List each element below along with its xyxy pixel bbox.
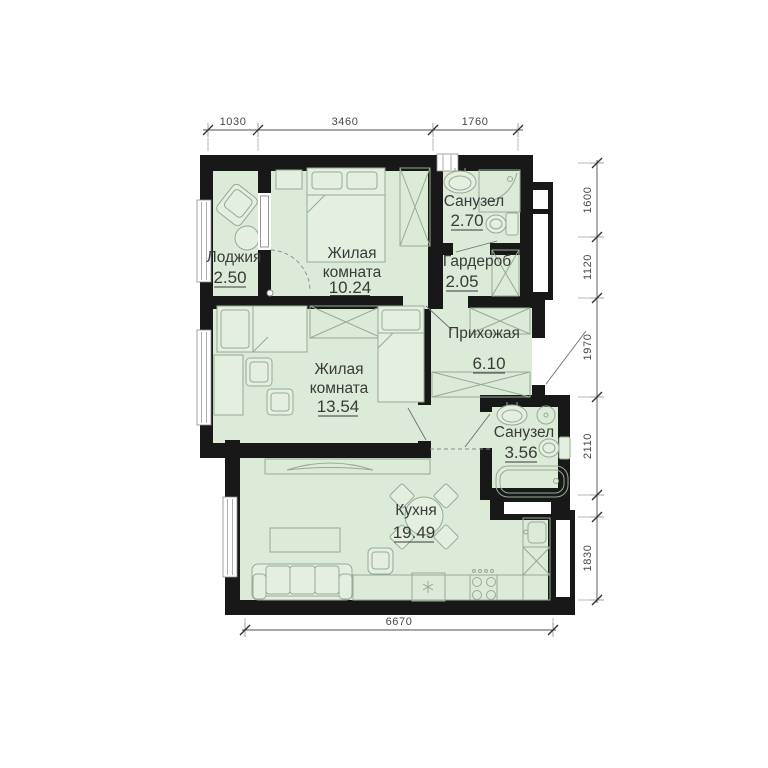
room-label-garderob: Гардероб — [443, 253, 511, 270]
room-label-hall: Прихожая — [448, 325, 520, 342]
room-area-garderob: 2.05 — [445, 272, 478, 291]
loggia-door-panel — [261, 196, 269, 247]
room-label-room2-2: комната — [310, 380, 369, 397]
kitchen-window — [223, 497, 237, 577]
room-label-bath2: Санузел — [494, 424, 554, 441]
single-bed-1 — [217, 306, 307, 352]
dim-label: 2110 — [582, 433, 594, 459]
room-area-bedroom1: 10.24 — [329, 278, 372, 297]
dim-label: 1030 — [220, 116, 247, 128]
floor-plan-page: 1030 3460 1760 — [0, 0, 768, 768]
floor-plan: 1030 3460 1760 — [0, 0, 768, 768]
door-pivot — [267, 290, 273, 296]
dim-right: 1600 1120 1970 2110 1830 — [578, 158, 604, 605]
room-label-room2: Жилая — [314, 361, 363, 378]
room2-window — [197, 330, 211, 425]
dim-label: 6670 — [386, 616, 413, 628]
dim-bottom: 6670 — [240, 616, 558, 637]
room-area-kitchen: 19.49 — [393, 523, 436, 542]
room-area-hall: 6.10 — [472, 354, 505, 373]
dim-label: 1970 — [582, 334, 594, 361]
loggia-window — [197, 200, 211, 282]
dim-label: 1830 — [582, 545, 594, 572]
armchair — [368, 548, 393, 574]
room-label-bedroom1: Жилая — [327, 245, 376, 262]
nightstand — [276, 170, 302, 189]
dim-label: 1600 — [582, 187, 594, 214]
bath1-toilet — [486, 213, 518, 235]
room-fill-hall — [430, 296, 532, 398]
room-area-loggia: 2.50 — [213, 268, 246, 287]
room-label-bath1: Санузел — [444, 193, 504, 210]
room-label-loggia: Лоджия — [207, 249, 262, 266]
desk-chair-1 — [246, 358, 272, 386]
room-label-kitchen: Кухня — [395, 502, 436, 519]
dim-label: 3460 — [332, 116, 359, 128]
dim-label: 1120 — [582, 254, 594, 280]
dim-label: 1760 — [462, 116, 489, 128]
loggia-table — [235, 226, 259, 250]
room-fill-doorgap4 — [478, 412, 492, 448]
room-fill-doorgap2 — [415, 405, 432, 443]
desk — [214, 355, 243, 415]
dim-top: 1030 3460 1760 — [203, 116, 523, 151]
room-area-bath2: 3.56 — [504, 443, 537, 462]
single-bed-2 — [378, 306, 424, 402]
room-area-bath1: 2.70 — [450, 211, 483, 230]
sofa — [252, 564, 352, 600]
entrance-door-leaf — [546, 331, 586, 384]
room-area-room2: 13.54 — [317, 397, 360, 416]
desk-chair-2 — [267, 389, 293, 415]
